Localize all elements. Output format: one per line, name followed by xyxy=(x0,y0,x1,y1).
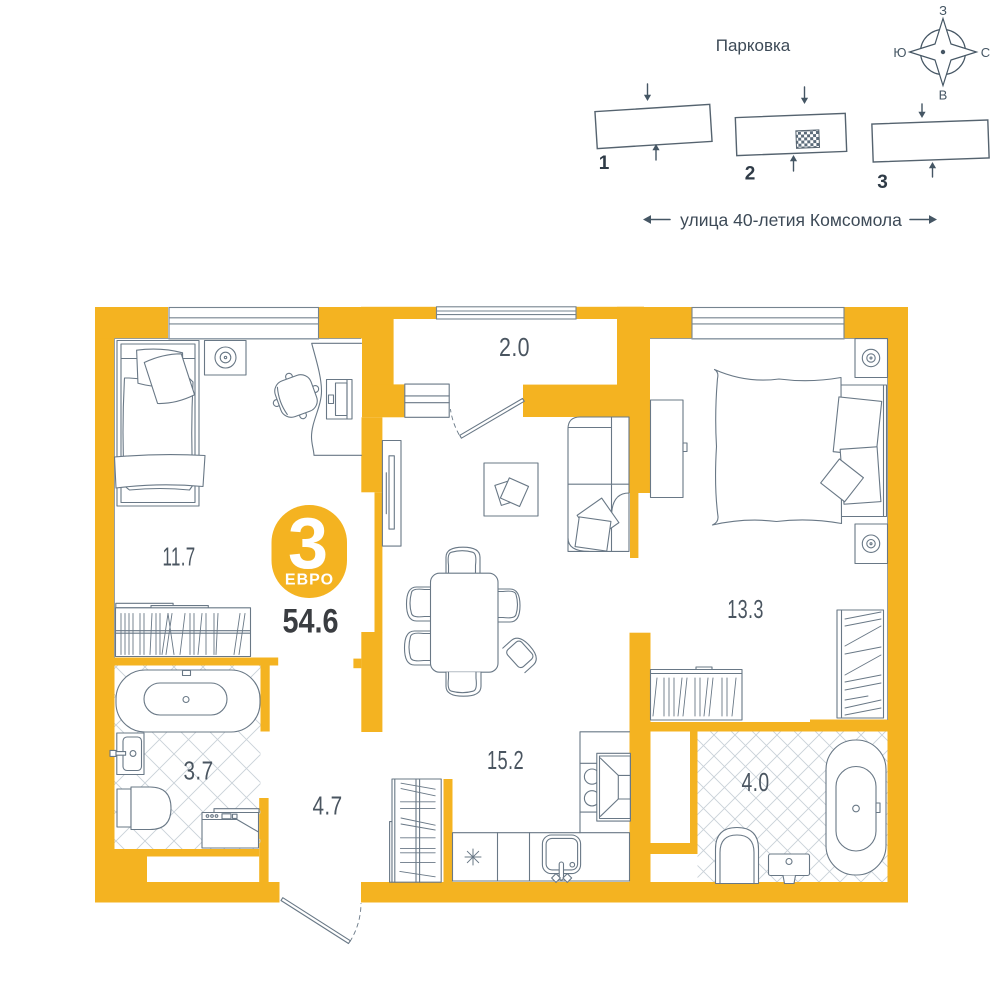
svg-text:Парковка: Парковка xyxy=(716,36,791,55)
svg-text:3.7: 3.7 xyxy=(184,756,214,786)
svg-text:15.2: 15.2 xyxy=(487,745,524,775)
svg-text:11.7: 11.7 xyxy=(163,542,196,572)
svg-text:1: 1 xyxy=(599,153,610,174)
svg-text:ЕВРО: ЕВРО xyxy=(285,572,334,589)
svg-text:4.7: 4.7 xyxy=(313,791,343,821)
svg-text:В: В xyxy=(939,88,948,103)
svg-text:2: 2 xyxy=(745,164,756,185)
svg-text:2.0: 2.0 xyxy=(499,332,530,362)
svg-text:З: З xyxy=(939,3,947,18)
svg-text:3: 3 xyxy=(877,172,888,193)
svg-text:4.0: 4.0 xyxy=(742,767,770,797)
svg-text:54.6: 54.6 xyxy=(283,603,339,641)
svg-text:улица 40-летия Комсомола: улица 40-летия Комсомола xyxy=(680,210,902,230)
svg-text:Ю: Ю xyxy=(893,45,906,60)
svg-text:13.3: 13.3 xyxy=(727,594,764,624)
svg-text:С: С xyxy=(981,45,990,60)
